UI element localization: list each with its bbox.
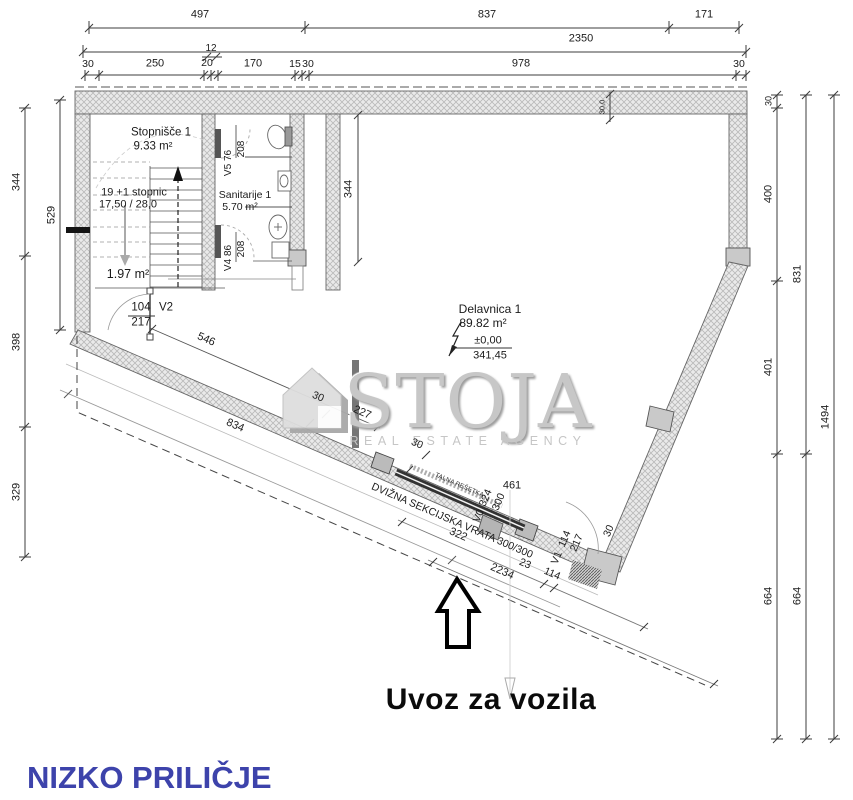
door-v2-width: 104 <box>131 302 150 314</box>
dim-top-170: 170 <box>244 59 262 70</box>
dim-top-497: 497 <box>191 10 209 21</box>
dim-right-400: 400 <box>764 185 775 203</box>
room-sanitary-name: Sanitarije 1 <box>219 190 272 201</box>
dim-right-401: 401 <box>764 358 775 376</box>
dim-right-664a: 664 <box>764 587 775 605</box>
dim-right-664b: 664 <box>793 587 804 605</box>
dim-top-250: 250 <box>146 59 164 70</box>
door-v4-code: V4 86 <box>224 245 234 271</box>
stairs-steps-note: 19 +1 stopnic <box>101 188 167 199</box>
entrance-label: Uvoz za vozila <box>386 685 596 715</box>
door-v5-height: 208 <box>237 141 247 158</box>
dim-top-20: 20 <box>201 58 213 69</box>
watermark-tagline: REAL ESTATE AGENCY <box>349 435 586 448</box>
room-stairs-area: 9.33 m² <box>134 141 173 153</box>
dim-top-12: 12 <box>205 44 216 54</box>
door-v2-code: V2 <box>159 302 173 314</box>
door-v5-code: V5 76 <box>224 150 234 176</box>
dim-top-30b: 30 <box>302 59 314 70</box>
dim-right-831: 831 <box>793 265 804 283</box>
door-v2 <box>108 288 155 340</box>
entrance-arrow <box>438 579 478 647</box>
walls <box>66 87 750 589</box>
room-sanitary-area: 5.70 m² <box>222 202 258 213</box>
dim-top-30c: 30 <box>733 59 745 70</box>
room-workshop-name: Delavnica 1 <box>459 303 522 315</box>
stairs-under-area: 1.97 m² <box>107 268 149 281</box>
dim-left-529: 529 <box>47 206 58 224</box>
dim-wall-30-0: 30,0 <box>598 100 606 115</box>
dim-top-978: 978 <box>512 59 530 70</box>
door-v4-height: 208 <box>237 241 247 258</box>
dim-top-2350: 2350 <box>569 34 593 45</box>
watermark-brand: STOJA <box>344 365 593 439</box>
dim-top-30a: 30 <box>82 59 94 70</box>
dim-left-329: 329 <box>12 483 23 501</box>
floor-plan: 497 837 171 2350 12 30 250 20 170 15 30 … <box>0 0 853 800</box>
dim-hall-344: 344 <box>344 180 355 198</box>
dim-left-398: 398 <box>12 333 23 351</box>
dim-top-171: 171 <box>695 10 713 21</box>
dim-top-15: 15 <box>289 59 301 70</box>
dim-left-344: 344 <box>12 173 23 191</box>
room-workshop-area: 89.82 m² <box>459 317 506 329</box>
dim-interior <box>354 90 614 266</box>
dim-right-30: 30 <box>765 96 774 106</box>
page-title: NIZKO PRILIČJE <box>27 760 272 796</box>
stairs-riser-note: 17,50 / 28,0 <box>99 200 157 211</box>
workshop-level: ±0,00 <box>474 336 501 347</box>
door-v2-height: 217 <box>131 317 150 329</box>
dim-right-1494: 1494 <box>821 405 832 429</box>
dim-left <box>19 96 66 561</box>
room-stairs-name: Stopnišče 1 <box>131 127 191 139</box>
dim-top <box>79 21 750 81</box>
dim-461: 461 <box>503 481 521 492</box>
dim-top-837: 837 <box>478 10 496 21</box>
